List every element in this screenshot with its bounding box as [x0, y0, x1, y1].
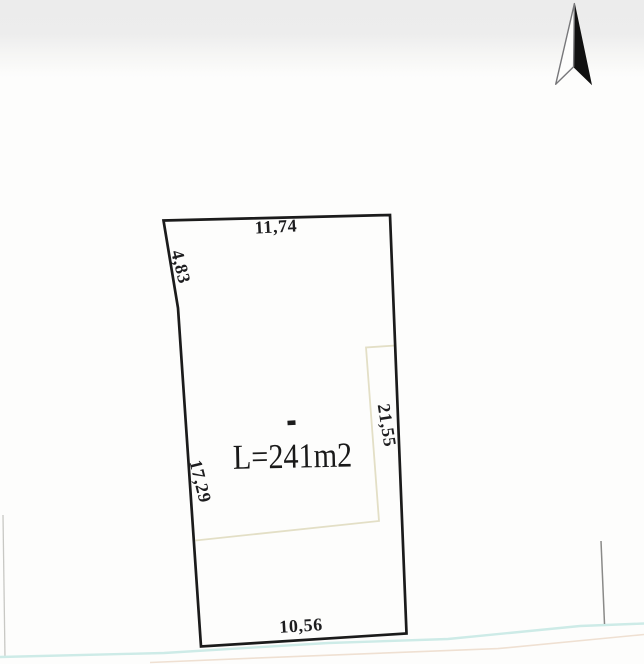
svg-text:L=241m2: L=241m2 [232, 436, 352, 477]
svg-text:11,74: 11,74 [254, 215, 298, 237]
svg-text:10,56: 10,56 [279, 614, 324, 637]
